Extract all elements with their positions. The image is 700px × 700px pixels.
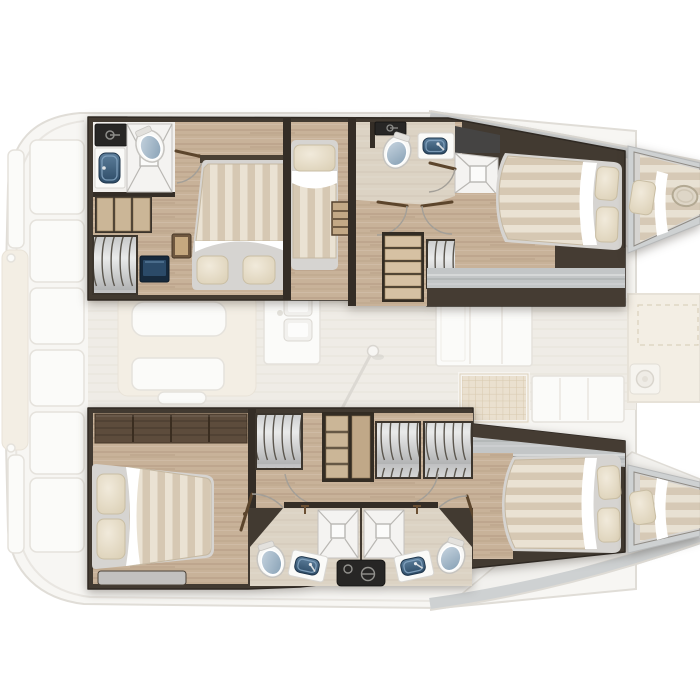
shower: [455, 153, 498, 196]
sink: [95, 148, 125, 188]
center-console: [337, 560, 385, 586]
hanging-locker: [256, 414, 302, 469]
shelf-unit: [95, 196, 152, 233]
pillow: [597, 465, 622, 500]
double-bed: [502, 455, 621, 553]
hanging-locker: [424, 422, 472, 478]
pillow: [597, 508, 620, 543]
ladder: [332, 202, 349, 235]
bulkhead: [348, 117, 356, 306]
stairs: [382, 232, 424, 302]
wall-band: [427, 288, 625, 306]
floor-plan-canvas: [0, 0, 700, 700]
black-counter: [95, 124, 127, 146]
port-single-cabin: [291, 122, 349, 300]
shower: [364, 510, 404, 558]
pillow: [97, 519, 125, 559]
double-bed: [496, 153, 622, 250]
double-bed: [192, 155, 288, 290]
bench: [98, 571, 186, 585]
shelf-unit: [322, 412, 374, 482]
saloon-table: [132, 302, 226, 336]
tv-unit: [140, 256, 169, 282]
starboard-aft-cabin: [92, 413, 248, 585]
forward-cockpit-lounge: [628, 294, 700, 402]
pillow: [595, 166, 620, 201]
shower: [318, 510, 358, 558]
pillow: [595, 207, 618, 243]
bulkhead: [283, 117, 291, 300]
pillow: [197, 256, 228, 284]
forepeak-berth: [628, 152, 700, 246]
starboard-forward-cabin: [473, 424, 625, 559]
hanging-locker: [376, 422, 420, 478]
nav-cabinet: [436, 300, 532, 366]
port-bow: [628, 146, 700, 253]
saloon-table-group: [118, 294, 256, 404]
door-handle-knob: [368, 346, 379, 357]
walkway: [427, 268, 625, 288]
pillow: [243, 256, 275, 284]
floor-plan-page: [0, 0, 700, 700]
port-hull: [88, 117, 625, 306]
wall-divider: [370, 122, 375, 148]
saloon-sofa: [132, 358, 224, 390]
single-bed: [291, 140, 338, 270]
port-aft-cabin: [93, 122, 288, 295]
pillow: [629, 489, 657, 525]
forward-locker: [630, 364, 660, 394]
pillow: [97, 474, 125, 514]
sink: [418, 133, 454, 159]
pillow: [294, 145, 335, 171]
side-cabinet: [532, 376, 624, 422]
hanging-locker: [93, 236, 137, 294]
wardrobe: [95, 414, 247, 443]
pillow: [628, 179, 656, 215]
double-bed: [92, 464, 214, 569]
